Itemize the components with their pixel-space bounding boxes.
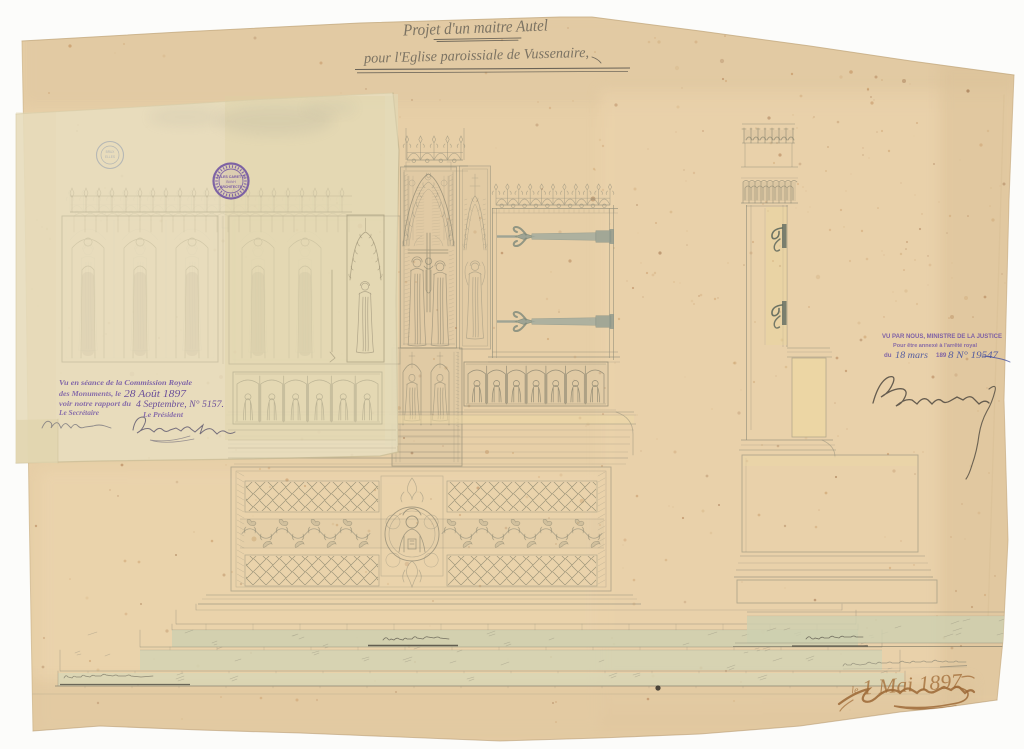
svg-text:Le Secrétaire: Le Secrétaire bbox=[58, 409, 99, 417]
svg-text:Le Président: Le Président bbox=[142, 411, 184, 419]
svg-text:du: du bbox=[884, 352, 892, 359]
svg-text:JULES CARETTE: JULES CARETTE bbox=[216, 175, 246, 179]
svg-text:Pour être annexé à l'arrêté ro: Pour être annexé à l'arrêté royal bbox=[893, 343, 978, 349]
svg-text:des Monuments, le: des Monuments, le bbox=[59, 390, 122, 398]
svg-text:B•V•H: B•V•H bbox=[226, 180, 236, 184]
svg-text:VU PAR NOUS, MINISTRE DE LA JU: VU PAR NOUS, MINISTRE DE LA JUSTICE bbox=[882, 334, 1002, 340]
svg-text:ARCHITECTE: ARCHITECTE bbox=[220, 185, 243, 189]
svg-text:8 N° 19547: 8 N° 19547 bbox=[948, 350, 999, 361]
svg-text:BRUX: BRUX bbox=[106, 150, 116, 154]
svg-text:voir notre rapport du: voir notre rapport du bbox=[59, 400, 131, 408]
svg-text:189: 189 bbox=[936, 352, 947, 359]
svg-text:4 Septembre, N° 5157.: 4 Septembre, N° 5157. bbox=[136, 399, 224, 409]
svg-text:Vu en séance de la Commission: Vu en séance de la Commission Royale bbox=[59, 379, 193, 387]
svg-text:ELLES: ELLES bbox=[105, 155, 115, 159]
svg-text:18 mars: 18 mars bbox=[895, 351, 928, 361]
